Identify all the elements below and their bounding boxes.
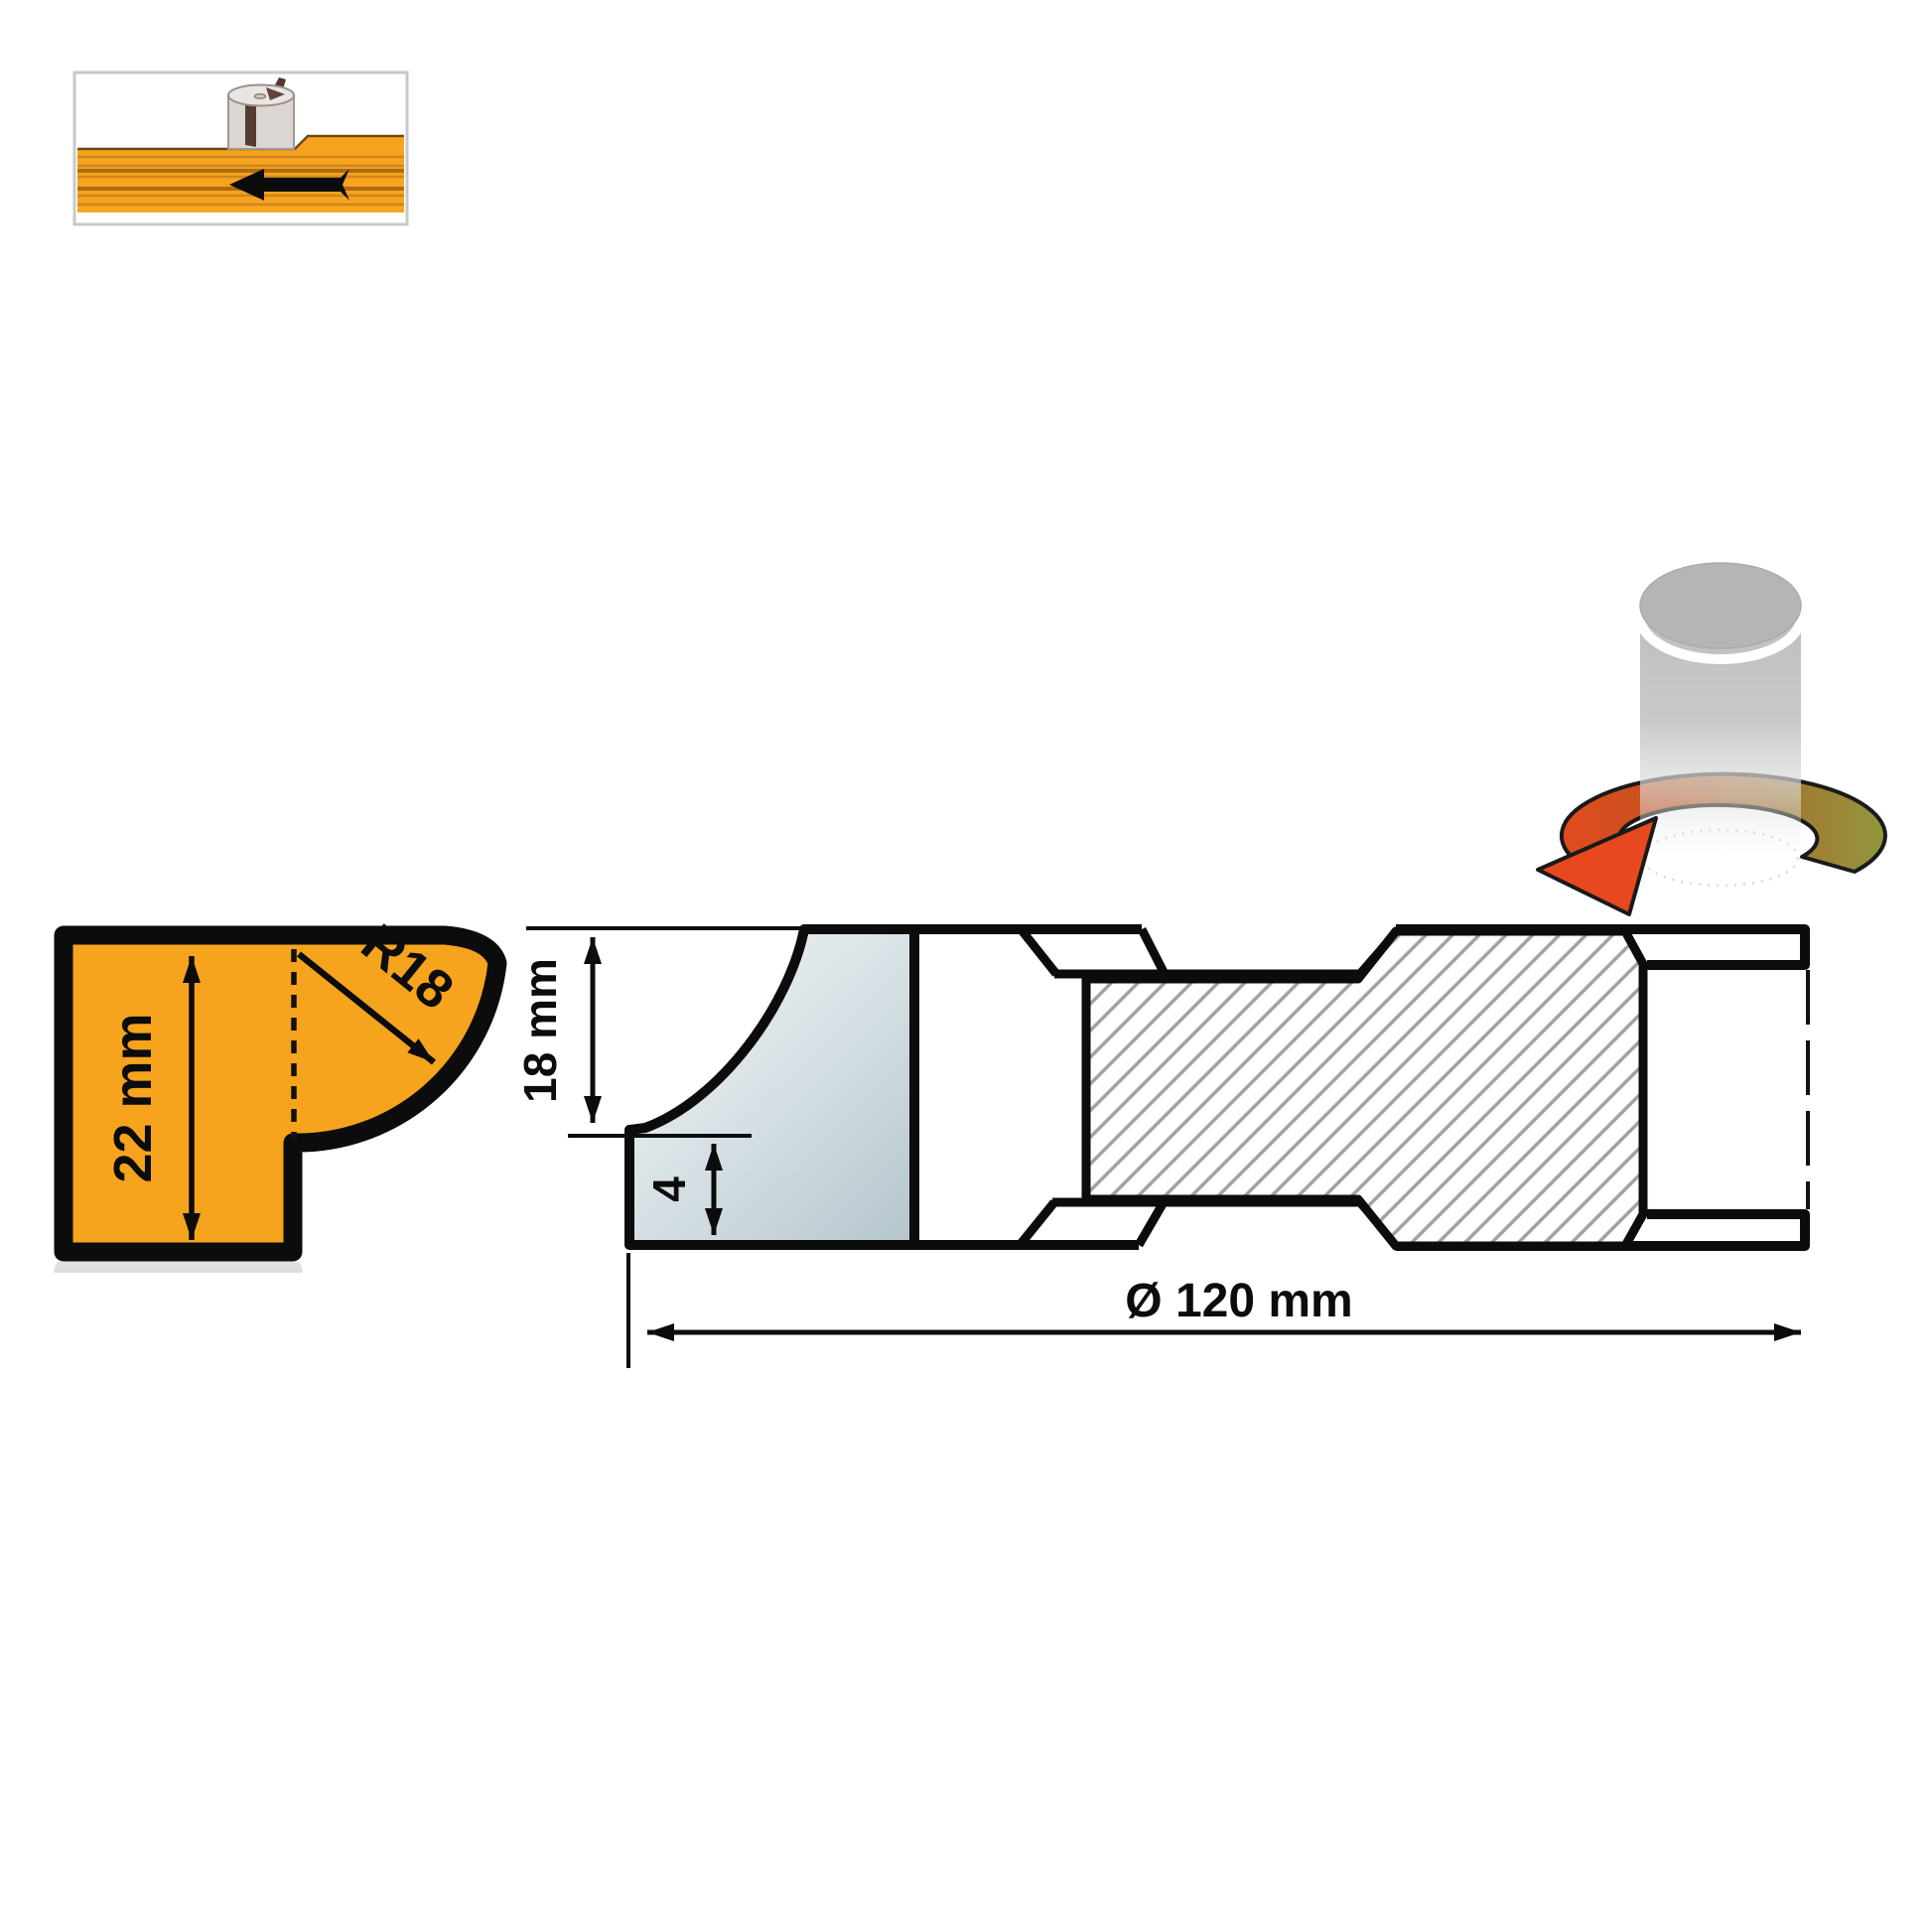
diagram-canvas: 18 mm 4 Ø 120 mm 22 mm R18 bbox=[0, 0, 1932, 1932]
label-18mm: 18 mm bbox=[514, 958, 566, 1103]
cutter-diagram-svg: 18 mm 4 Ø 120 mm 22 mm R18 bbox=[0, 0, 1932, 1932]
cutter-cross-section bbox=[629, 929, 1805, 1246]
label-22mm: 22 mm bbox=[103, 1013, 163, 1182]
bottom-chamfer-outer bbox=[1139, 1202, 1164, 1245]
wood-profile-diagram: 22 mm R18 bbox=[64, 913, 497, 1252]
label-4: 4 bbox=[643, 1176, 695, 1202]
hub-section-hatched bbox=[1086, 931, 1643, 1246]
spindle-cylinder bbox=[1640, 563, 1801, 858]
top-chamfer-inner bbox=[1022, 930, 1056, 974]
top-chamfer-outer bbox=[1142, 929, 1165, 974]
cutter-head-pictogram bbox=[228, 77, 294, 149]
profile-reflection bbox=[64, 1270, 497, 1587]
spindle-and-rotation bbox=[1538, 563, 1885, 914]
bottom-chamfer-inner bbox=[1021, 1202, 1054, 1244]
feed-direction-icon bbox=[74, 72, 407, 224]
section-reflection bbox=[629, 1250, 1805, 1567]
